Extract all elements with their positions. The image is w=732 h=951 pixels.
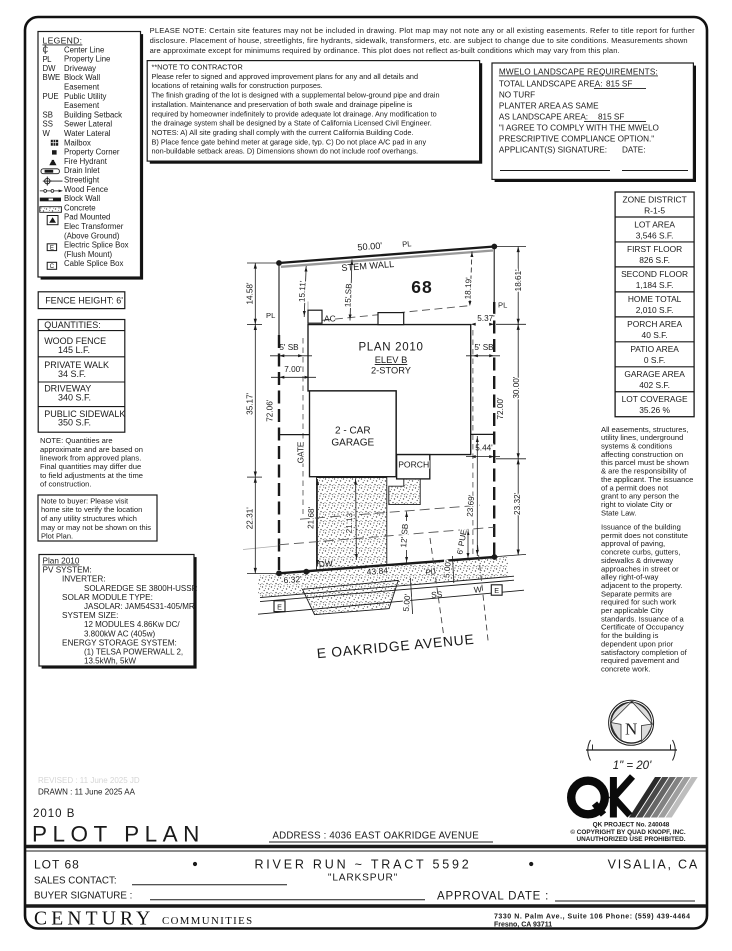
svg-text:826 S.F.: 826 S.F. xyxy=(639,255,670,265)
svg-text:SOLAR MODULE TYPE:: SOLAR MODULE TYPE: xyxy=(62,593,153,602)
svg-text:approximate and are based on: approximate and are based on xyxy=(40,445,143,454)
svg-text:The finish grading of the lot: The finish grading of the lot is designe… xyxy=(152,91,440,100)
svg-text:PRESCRIPTIVE COMPLIANCE OPTION: PRESCRIPTIVE COMPLIANCE OPTION." xyxy=(499,135,654,144)
svg-text:18.61': 18.61' xyxy=(514,269,523,291)
svg-text:QUANTITIES:: QUANTITIES: xyxy=(44,320,101,330)
svg-text:3,546 S.F.: 3,546 S.F. xyxy=(636,230,674,240)
svg-text:2 - CAR: 2 - CAR xyxy=(335,426,371,437)
svg-text:1" = 20': 1" = 20' xyxy=(613,760,652,772)
svg-text:72.00': 72.00' xyxy=(496,397,505,419)
svg-text:5.00': 5.00' xyxy=(442,560,453,579)
svg-text:72.06': 72.06' xyxy=(266,399,275,421)
svg-text:© COPYRIGHT BY QUAD KNOPF, I: © COPYRIGHT BY QUAD KNOPF, INC. xyxy=(570,828,686,836)
svg-text:the drainage system shall be d: the drainage system shall be designed by… xyxy=(152,119,432,128)
svg-text:concrete work.: concrete work. xyxy=(601,665,650,674)
svg-text:SS: SS xyxy=(431,589,443,600)
svg-text:DW: DW xyxy=(43,64,57,73)
svg-text:of construction.: of construction. xyxy=(40,479,92,488)
svg-text:21.13': 21.13' xyxy=(345,511,355,534)
svg-text:22.31': 22.31' xyxy=(246,507,255,529)
svg-text:Easement: Easement xyxy=(64,101,100,110)
svg-text:PORCH: PORCH xyxy=(398,460,429,470)
svg-text:1,184 S.F.: 1,184 S.F. xyxy=(636,280,674,290)
svg-text:JASOLAR: JAM54S31-405/MR: JASOLAR: JAM54S31-405/MR xyxy=(84,602,195,611)
svg-text:LOT COVERAGE: LOT COVERAGE xyxy=(622,394,688,404)
svg-text:ENERGY STORAGE SYSTEM:: ENERGY STORAGE SYSTEM: xyxy=(62,638,177,647)
svg-text:ELEV B: ELEV B xyxy=(375,355,408,365)
svg-text:"I AGREE TO COMPLY WITH THE MW: "I AGREE TO COMPLY WITH THE MWELO xyxy=(499,124,659,133)
svg-text:FENCE HEIGHT: 6': FENCE HEIGHT: 6' xyxy=(45,296,123,306)
svg-text:E: E xyxy=(277,602,282,611)
svg-text:5.37': 5.37' xyxy=(477,314,495,323)
svg-text:5.00': 5.00' xyxy=(402,593,413,612)
svg-text:APPLICANT(S) SIGNATURE:: APPLICANT(S) SIGNATURE: xyxy=(499,146,607,155)
svg-text:INVERTER:: INVERTER: xyxy=(62,575,106,584)
svg-text:PLANTER AREA AS SAME: PLANTER AREA AS SAME xyxy=(499,102,599,111)
svg-text:Driveway: Driveway xyxy=(64,64,96,73)
svg-text:UNAUTHORIZED USE PROHIBITED.: UNAUTHORIZED USE PROHIBITED. xyxy=(577,836,686,843)
svg-text:GATE: GATE xyxy=(297,441,306,463)
svg-text:PL: PL xyxy=(402,239,412,249)
svg-text:Note to buyer: Please visit: Note to buyer: Please visit xyxy=(41,496,129,505)
svg-text:installation. Maintenance and: installation. Maintenance and preservati… xyxy=(152,100,413,109)
svg-text:6.32': 6.32' xyxy=(283,574,302,585)
svg-text:(1) TELSA POWERWALL 2,: (1) TELSA POWERWALL 2, xyxy=(84,648,183,657)
svg-text:Block Wall: Block Wall xyxy=(64,194,100,203)
svg-text:locations of retaining walls f: locations of retaining walls for constru… xyxy=(152,81,323,90)
svg-text:815 SF: 815 SF xyxy=(598,113,624,122)
svg-text:Water Lateral: Water Lateral xyxy=(64,129,111,138)
svg-text:PL: PL xyxy=(266,311,275,320)
svg-text:13.5kWh, 5kW: 13.5kWh, 5kW xyxy=(84,657,136,666)
svg-text:CENTURY: CENTURY xyxy=(34,909,154,930)
svg-text:Block Wall: Block Wall xyxy=(64,73,100,82)
svg-text:Plot Plan.: Plot Plan. xyxy=(41,532,73,541)
svg-text:Sewer Lateral: Sewer Lateral xyxy=(64,120,112,129)
svg-text:NOTES: A) All site grading sh: NOTES: A) All site grading shall comply … xyxy=(152,128,414,137)
svg-text:18.19': 18.19' xyxy=(463,277,473,300)
svg-text:BUYER SIGNATURE :: BUYER SIGNATURE : xyxy=(34,891,132,902)
svg-text:0 S.F.: 0 S.F. xyxy=(644,355,665,365)
svg-text:DRAWN : 11 June 2025 AA: DRAWN : 11 June 2025 AA xyxy=(38,788,136,797)
svg-text:Center Line: Center Line xyxy=(64,45,104,54)
svg-text:15.11': 15.11' xyxy=(297,280,307,302)
svg-text:Please refer to signed and app: Please refer to signed and approved impr… xyxy=(152,72,419,81)
svg-text:required by homeowner indefini: required by homeowner indefinitely to pr… xyxy=(152,109,437,118)
svg-text:5' SB: 5' SB xyxy=(474,343,494,352)
svg-text:MWELO LANDSCAPE REQUIREMENTS:: MWELO LANDSCAPE REQUIREMENTS: xyxy=(499,68,658,77)
svg-text:C: C xyxy=(50,263,55,270)
svg-text:TOTAL LANDSCAPE AREA:: TOTAL LANDSCAPE AREA: xyxy=(499,80,603,89)
svg-text:Plan 2010: Plan 2010 xyxy=(43,557,80,566)
svg-text:PV SYSTEM:: PV SYSTEM: xyxy=(43,566,92,575)
svg-text:"LARKSPUR": "LARKSPUR" xyxy=(328,873,398,884)
svg-text:QK PROJECT No. 240048: QK PROJECT No. 240048 xyxy=(593,822,670,829)
svg-text:43.84': 43.84' xyxy=(366,565,390,577)
svg-text:LOT AREA: LOT AREA xyxy=(634,219,675,229)
svg-text:(Above Ground): (Above Ground) xyxy=(64,231,120,240)
svg-text:Concrete: Concrete xyxy=(64,203,96,212)
svg-text:DATE:: DATE: xyxy=(622,146,646,155)
svg-text:ADDRESS : 4036 EAST OAKRIDGE: ADDRESS : 4036 EAST OAKRIDGE AVENUE xyxy=(273,831,480,842)
svg-text:LOT 68: LOT 68 xyxy=(34,858,80,872)
svg-text:Fire Hydrant: Fire Hydrant xyxy=(64,157,108,166)
svg-text:N: N xyxy=(625,720,637,739)
svg-text:2-STORY: 2-STORY xyxy=(371,366,411,376)
svg-text:linework from approved plans.: linework from approved plans. xyxy=(40,454,141,463)
svg-text:NO TURF: NO TURF xyxy=(499,91,535,100)
svg-text:COMMUNITIES: COMMUNITIES xyxy=(162,915,254,927)
svg-text:30.00': 30.00' xyxy=(512,376,521,398)
svg-text:5' SB: 5' SB xyxy=(279,343,299,352)
svg-text:SOLAREDGE SE 3800H-USSR: SOLAREDGE SE 3800H-USSR xyxy=(84,584,198,593)
svg-text:2010 B: 2010 B xyxy=(33,808,75,820)
svg-text:7.00': 7.00' xyxy=(284,365,302,374)
svg-text:Final quantities may differ du: Final quantities may differ due xyxy=(40,462,141,471)
svg-text:PLOT PLAN: PLOT PLAN xyxy=(32,822,205,847)
svg-text:E: E xyxy=(50,245,54,252)
svg-text:340 S.F.: 340 S.F. xyxy=(58,393,91,403)
svg-text:BWE: BWE xyxy=(43,73,61,82)
svg-text:SYSTEM SIZE:: SYSTEM SIZE: xyxy=(62,611,118,620)
svg-text:are approximate except for min: are approximate except for minimums requ… xyxy=(150,46,620,55)
svg-text:68: 68 xyxy=(411,277,432,297)
svg-text:50.00': 50.00' xyxy=(357,241,383,253)
svg-text:W: W xyxy=(43,129,51,138)
svg-text:815 SF: 815 SF xyxy=(606,80,632,89)
svg-text:ZONE DISTRICT: ZONE DISTRICT xyxy=(622,194,686,204)
svg-text:Mailbox: Mailbox xyxy=(64,138,91,147)
svg-text:402 S.F.: 402 S.F. xyxy=(639,380,670,390)
svg-text:E: E xyxy=(494,586,499,595)
svg-text:3.800kW AC (405w): 3.800kW AC (405w) xyxy=(84,629,155,638)
svg-text:AC: AC xyxy=(324,314,336,324)
svg-text:W: W xyxy=(473,584,482,595)
svg-text:40 S.F.: 40 S.F. xyxy=(642,330,668,340)
svg-text:GARAGE AREA: GARAGE AREA xyxy=(624,369,685,379)
svg-text:35.26 %: 35.26 % xyxy=(639,405,670,415)
svg-text:350 S.F.: 350 S.F. xyxy=(58,418,91,428)
svg-text:non-buildable setback areas.: non-buildable setback areas. D) Dimensio… xyxy=(152,147,419,156)
svg-text:Easement: Easement xyxy=(64,83,100,92)
svg-text:SALES CONTACT:: SALES CONTACT: xyxy=(34,876,117,887)
svg-text:PLAN 2010: PLAN 2010 xyxy=(358,342,423,354)
svg-text:Property Corner: Property Corner xyxy=(64,148,120,157)
svg-text:Public Utility: Public Utility xyxy=(64,92,107,101)
svg-text:B) Place fence gate behind met: B) Place fence gate behind meter at gara… xyxy=(152,137,427,146)
svg-text:REVISED : 11 June 2025 JD: REVISED : 11 June 2025 JD xyxy=(38,776,140,785)
svg-text:Pad Mounted: Pad Mounted xyxy=(64,213,110,222)
svg-text:Property Line: Property Line xyxy=(64,55,110,64)
svg-text:R-1-5: R-1-5 xyxy=(644,205,665,215)
svg-text:PL: PL xyxy=(43,55,53,64)
svg-text:State Law.: State Law. xyxy=(601,508,636,517)
svg-text:PL: PL xyxy=(498,301,507,310)
svg-text:PLEASE NOTE: Certain site fea: PLEASE NOTE: Certain site features may n… xyxy=(150,26,696,35)
svg-text:7330 N. Palm Ave., Suite 106: 7330 N. Palm Ave., Suite 106 Phone: (559… xyxy=(494,914,690,921)
svg-text:14.58': 14.58' xyxy=(246,282,255,304)
svg-text:NOTE: Quantities are: NOTE: Quantities are xyxy=(40,436,113,445)
svg-text:Electric Splice Box: Electric Splice Box xyxy=(64,241,129,250)
svg-text:2,010 S.F.: 2,010 S.F. xyxy=(636,305,674,315)
svg-text:5.44': 5.44' xyxy=(475,443,493,452)
svg-text:35.17': 35.17' xyxy=(246,392,255,414)
svg-text:SS: SS xyxy=(43,120,53,129)
svg-text:SB: SB xyxy=(43,110,53,119)
svg-text:23.32': 23.32' xyxy=(513,492,522,514)
svg-text:GARAGE: GARAGE xyxy=(331,438,374,449)
svg-text:**NOTE TO CONTRACTOR: **NOTE TO CONTRACTOR xyxy=(152,63,243,72)
svg-text:Wood Fence: Wood Fence xyxy=(64,185,108,194)
svg-text:APPROVAL DATE :: APPROVAL DATE : xyxy=(437,891,549,903)
svg-text:home site to verify the locati: home site to verify the location xyxy=(41,505,142,514)
svg-text:FIRST FLOOR: FIRST FLOOR xyxy=(627,244,682,254)
svg-text:of any utility structures whic: of any utility structures which xyxy=(41,514,137,523)
svg-text:15' SB: 15' SB xyxy=(343,283,353,308)
svg-text:to field adjustments at the ti: to field adjustments at the time xyxy=(40,471,143,480)
svg-text:LEGEND:: LEGEND: xyxy=(43,36,83,46)
svg-text:Streetlight: Streetlight xyxy=(64,176,100,185)
svg-text:PL: PL xyxy=(425,567,435,577)
svg-text:PORCH AREA: PORCH AREA xyxy=(627,319,682,329)
svg-text:RIVER RUN ~ TRACT 5592: RIVER RUN ~ TRACT 5592 xyxy=(254,858,471,872)
svg-text:HOME TOTAL: HOME TOTAL xyxy=(628,294,682,304)
svg-text:PATIO AREA: PATIO AREA xyxy=(630,344,679,354)
svg-text:PUE: PUE xyxy=(43,92,59,101)
svg-text:12' SB: 12' SB xyxy=(399,523,410,548)
svg-text:(Flush Mount): (Flush Mount) xyxy=(64,250,112,259)
svg-text:VISALIA, CA: VISALIA, CA xyxy=(608,858,699,872)
svg-text:SECOND FLOOR: SECOND FLOOR xyxy=(621,269,688,279)
svg-text:disclosure. Placement of hous: disclosure. Placement of house, streetli… xyxy=(150,36,688,45)
svg-text:Elec Transformer: Elec Transformer xyxy=(64,222,124,231)
svg-text:Fresno, CA 93711: Fresno, CA 93711 xyxy=(494,922,552,929)
svg-text:34 S.F.: 34 S.F. xyxy=(58,369,86,379)
svg-text:12 MODULES 4.86Kw DC/: 12 MODULES 4.86Kw DC/ xyxy=(84,620,180,629)
svg-text:Cable Splice Box: Cable Splice Box xyxy=(64,259,123,268)
svg-text:DW: DW xyxy=(318,558,333,569)
svg-text:Drain Inlet: Drain Inlet xyxy=(64,166,100,175)
svg-text:21.68': 21.68' xyxy=(306,506,316,529)
svg-text:may or may not be shown on thi: may or may not be shown on this xyxy=(41,523,151,532)
svg-text:Building Setback: Building Setback xyxy=(64,110,122,119)
svg-text:145 L.F.: 145 L.F. xyxy=(58,345,90,355)
svg-text:AS LANDSCAPE AREA:: AS LANDSCAPE AREA: xyxy=(499,113,588,122)
